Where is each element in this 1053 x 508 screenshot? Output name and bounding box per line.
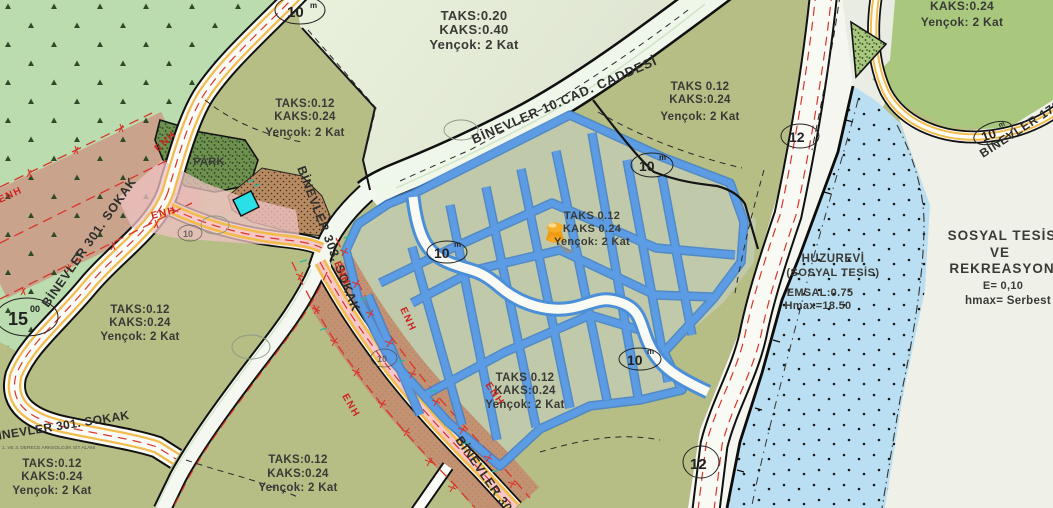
svg-text:TAKS:0.12: TAKS:0.12 xyxy=(268,454,327,466)
svg-text:hmax= Serbest: hmax= Serbest xyxy=(965,295,1051,307)
svg-text:KAKS:0.24: KAKS:0.24 xyxy=(21,471,83,483)
svg-text:TAKS 0.12: TAKS 0.12 xyxy=(564,210,620,222)
svg-text:Yençok: 2 Kat: Yençok: 2 Kat xyxy=(265,127,344,139)
svg-text:TAKS:0.12: TAKS:0.12 xyxy=(22,458,81,470)
svg-text:KAKS 0.24: KAKS 0.24 xyxy=(563,223,622,235)
svg-text:(SOSYAL TESİS): (SOSYAL TESİS) xyxy=(786,266,879,279)
svg-text:Yençok: 2 Kat: Yençok: 2 Kat xyxy=(429,37,519,52)
svg-text:12: 12 xyxy=(789,129,805,145)
svg-text:VE: VE xyxy=(990,245,1010,260)
svg-text:KAKS:0.40: KAKS:0.40 xyxy=(439,22,508,37)
svg-text:Hmax=18.50: Hmax=18.50 xyxy=(785,300,852,312)
svg-text:KAKS:0.24: KAKS:0.24 xyxy=(669,94,731,106)
svg-text:10: 10 xyxy=(287,4,304,21)
svg-text:Yençok: 2 Kat: Yençok: 2 Kat xyxy=(12,485,91,497)
svg-text:EMSAL:0.75: EMSAL:0.75 xyxy=(787,287,854,299)
svg-text:00: 00 xyxy=(30,304,40,314)
svg-text:10: 10 xyxy=(434,245,450,261)
svg-text:TAKS:0.20: TAKS:0.20 xyxy=(441,8,508,23)
svg-text:REKREASYON: REKREASYON xyxy=(949,261,1053,276)
svg-text:m: m xyxy=(647,347,654,356)
svg-text:12: 12 xyxy=(690,456,707,473)
svg-text:10: 10 xyxy=(639,158,655,174)
svg-text:10: 10 xyxy=(627,352,643,368)
svg-text:m: m xyxy=(454,240,461,249)
svg-text:Yençok: 2 Kat: Yençok: 2 Kat xyxy=(258,482,337,494)
svg-text:PARK: PARK xyxy=(193,156,225,168)
svg-text:SOSYAL TESİS: SOSYAL TESİS xyxy=(948,228,1053,243)
svg-text:15: 15 xyxy=(8,309,28,329)
svg-text:Yençok: 2 Kat: Yençok: 2 Kat xyxy=(921,15,1004,29)
svg-text:KAKS:0.24: KAKS:0.24 xyxy=(494,385,556,397)
svg-text:TAKS 0.12: TAKS 0.12 xyxy=(496,372,555,384)
svg-text:Yençok: 2 Kat: Yençok: 2 Kat xyxy=(554,236,630,248)
svg-text:KAKS:0.24: KAKS:0.24 xyxy=(109,317,171,329)
svg-text:m: m xyxy=(310,1,317,10)
svg-text:E= 0,10: E= 0,10 xyxy=(983,280,1023,292)
svg-text:TAKS 0.12: TAKS 0.12 xyxy=(671,81,730,93)
svg-text:KAKS:0.24: KAKS:0.24 xyxy=(274,111,336,123)
svg-text:10: 10 xyxy=(183,229,193,239)
svg-text:KAKS:0.24: KAKS:0.24 xyxy=(930,0,994,13)
svg-text:Yençok: 2 Kat: Yençok: 2 Kat xyxy=(100,331,179,343)
svg-text:KAKS:0.24: KAKS:0.24 xyxy=(267,468,329,480)
svg-text:m: m xyxy=(659,153,666,162)
svg-text:TAKS:0.12: TAKS:0.12 xyxy=(275,98,334,110)
svg-text:Yençok: 2 Kat: Yençok: 2 Kat xyxy=(660,111,739,123)
svg-text:HUZUREVİ: HUZUREVİ xyxy=(802,252,865,265)
svg-text:TAKS:0.12: TAKS:0.12 xyxy=(110,304,169,316)
svg-text:10: 10 xyxy=(377,354,387,364)
svg-text:1. VE 3. DERECE ARKEOLOJİK SİT: 1. VE 3. DERECE ARKEOLOJİK SİT ALANI xyxy=(2,444,95,451)
